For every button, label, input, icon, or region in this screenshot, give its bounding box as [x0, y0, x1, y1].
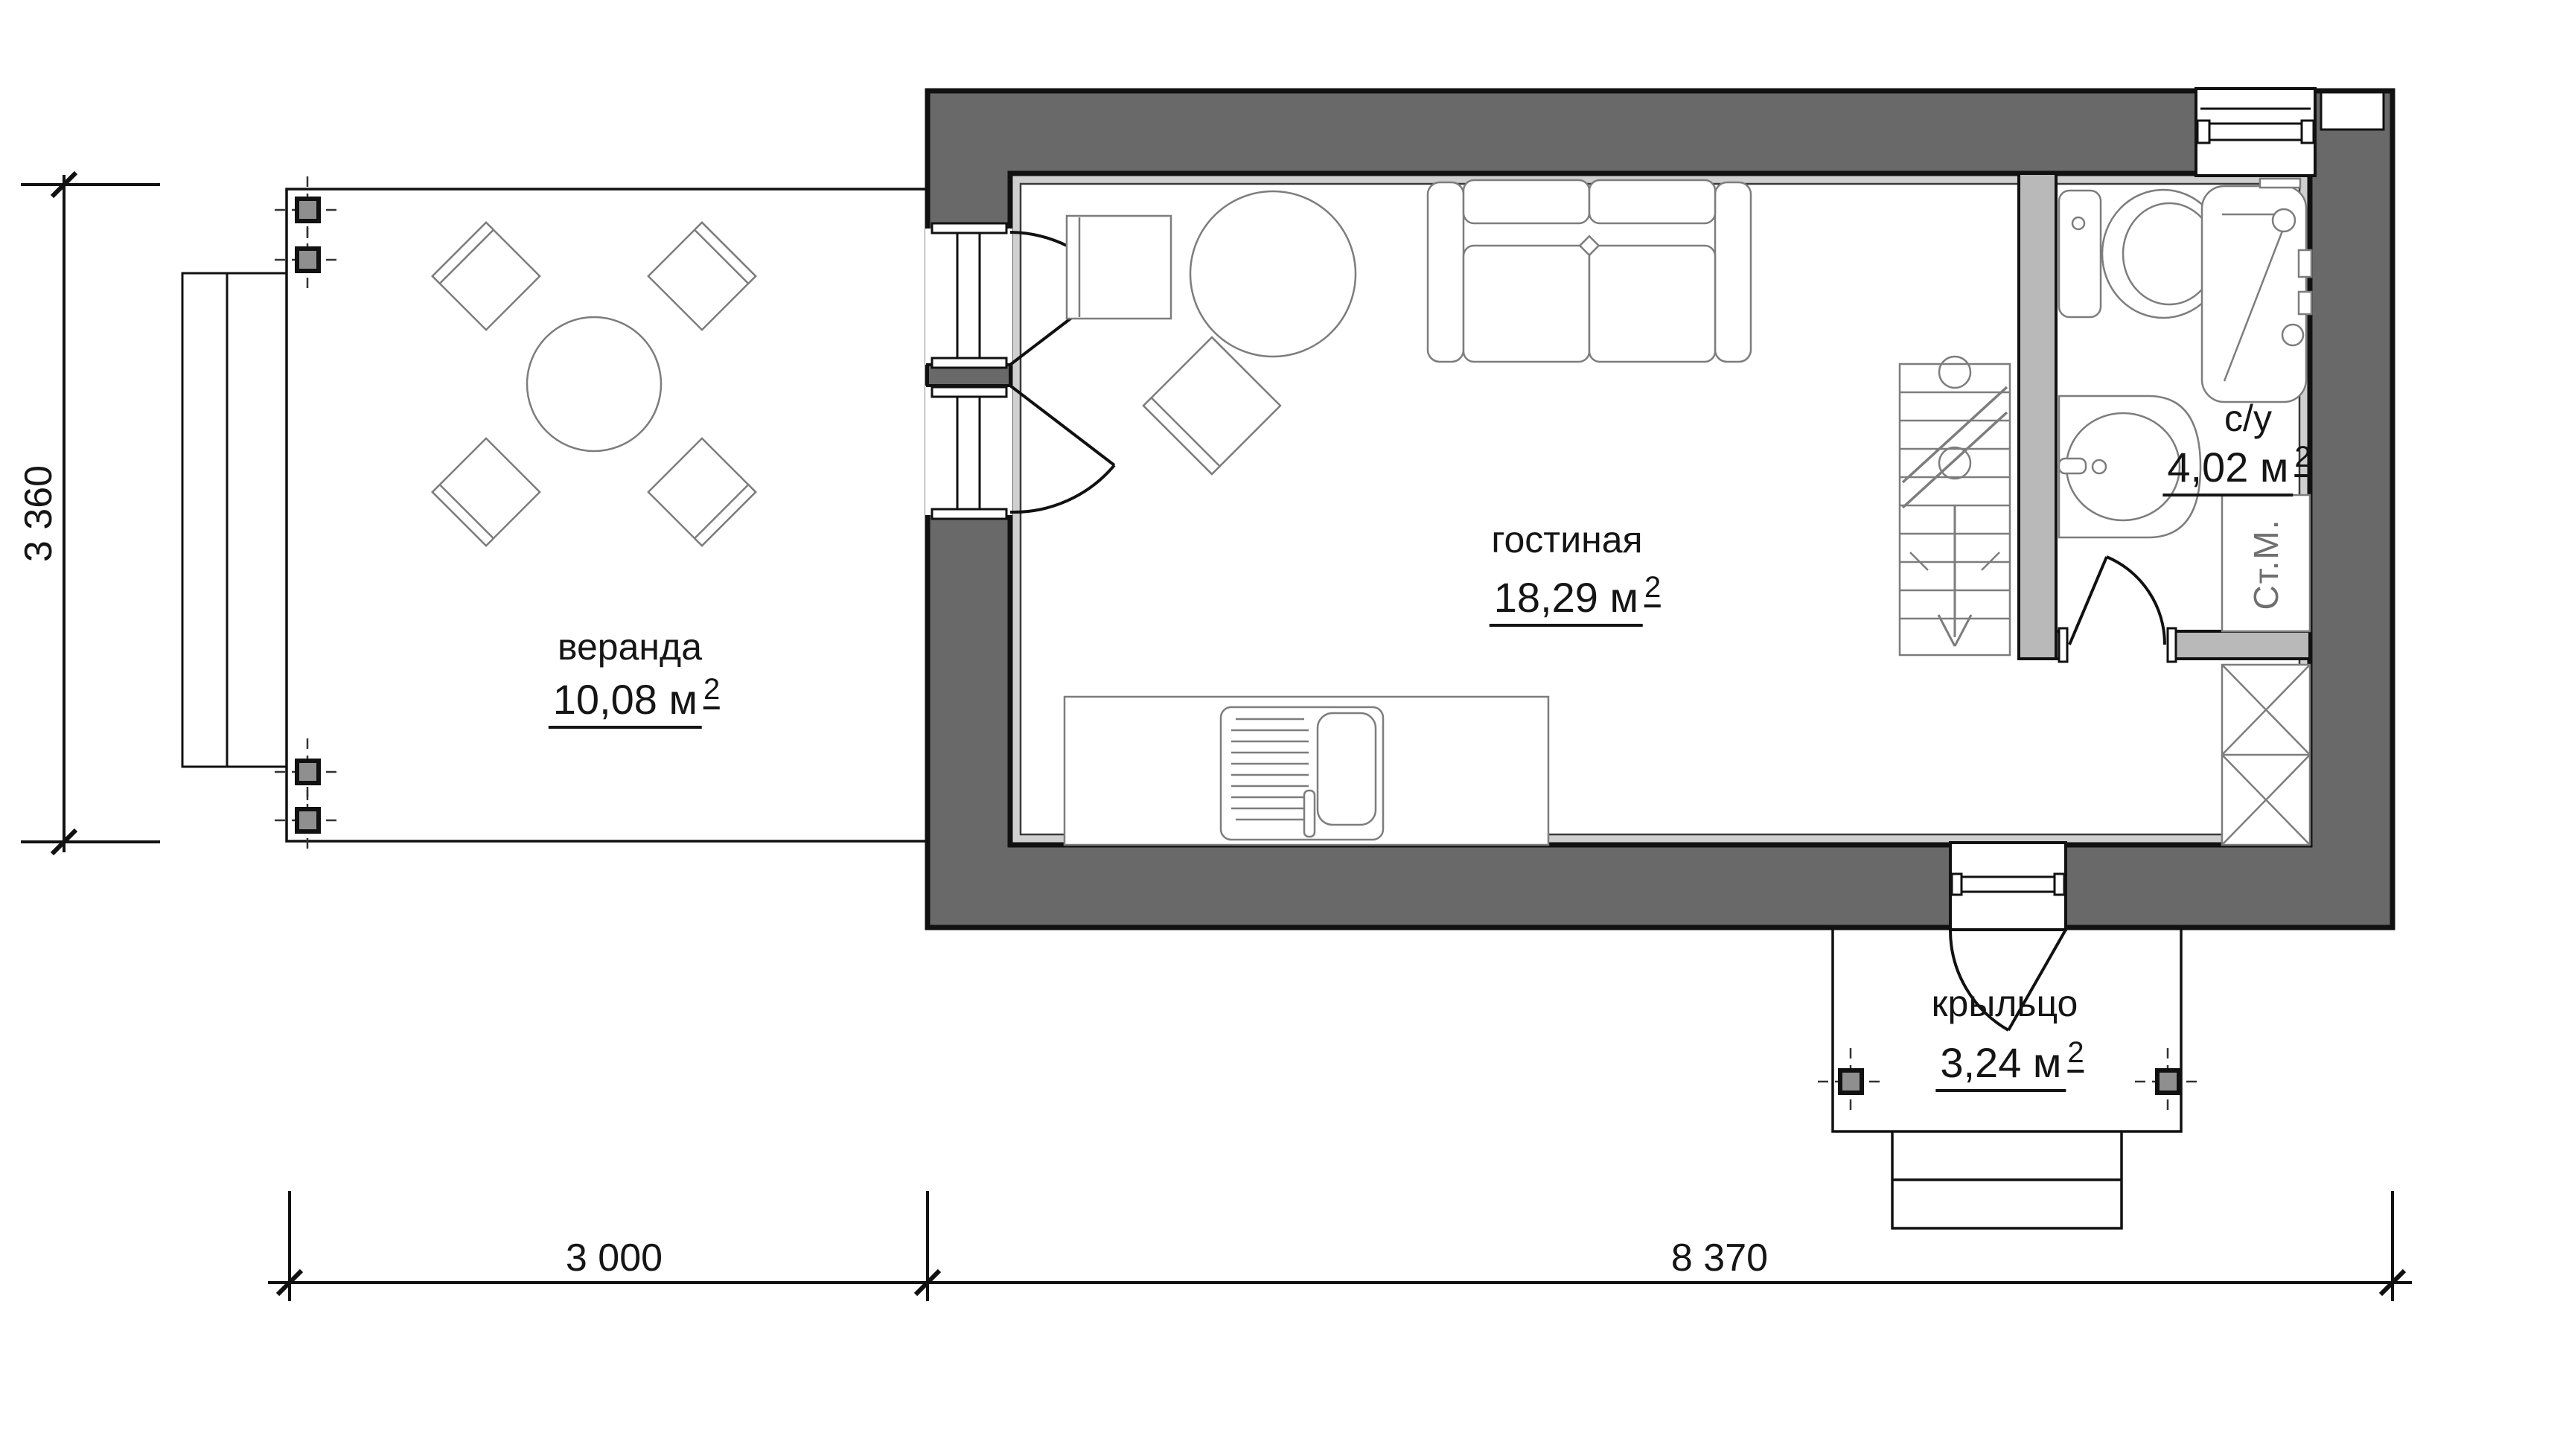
shower — [2202, 179, 2311, 402]
toilet — [2059, 190, 2224, 318]
dimension-bottom-right: 8 370 — [1671, 1236, 1768, 1280]
sofa — [1428, 180, 1751, 362]
sink-faucet — [1304, 791, 1315, 837]
stairs — [1900, 357, 2010, 655]
room-label-porch: крыльцо — [1932, 982, 2078, 1025]
chair-diamond — [1143, 337, 1280, 474]
washing-machine-label: Ст.М. — [2246, 518, 2286, 610]
floor-plan-drawing — [0, 0, 2560, 1456]
dimension-left: 3 360 — [16, 465, 61, 562]
armchair-square — [1067, 216, 1171, 319]
room-label-bathroom: с/у — [2224, 397, 2272, 440]
kitchen-counter — [1064, 697, 1548, 845]
cabinet-x — [2222, 665, 2310, 845]
round-table — [527, 317, 661, 451]
bathroom-window — [2196, 89, 2315, 176]
room-area-veranda: 10,08 м2 — [549, 675, 720, 724]
veranda-deck — [182, 189, 928, 841]
veranda-posts — [275, 176, 341, 855]
room-area-living: 18,29 м2 — [1490, 573, 1661, 622]
chair — [432, 223, 540, 330]
chair — [648, 438, 756, 546]
room-area-porch: 3,24 м2 — [1935, 1038, 2084, 1088]
room-label-veranda: веранда — [558, 625, 702, 668]
chair — [648, 223, 756, 330]
wall-notch — [2321, 92, 2384, 130]
chair — [432, 438, 540, 546]
room-area-bathroom: 4,02 м2 — [2162, 443, 2311, 492]
veranda-dining-set — [432, 223, 756, 546]
round-table-living — [1190, 191, 1356, 357]
floor-plan-page: веранда 10,08 м2 гостиная 18,29 м2 с/у 4… — [0, 0, 2560, 1456]
dimension-bottom-left: 3 000 — [566, 1236, 663, 1280]
sink-bowl — [1318, 713, 1376, 825]
room-label-living: гостиная — [1491, 518, 1642, 561]
